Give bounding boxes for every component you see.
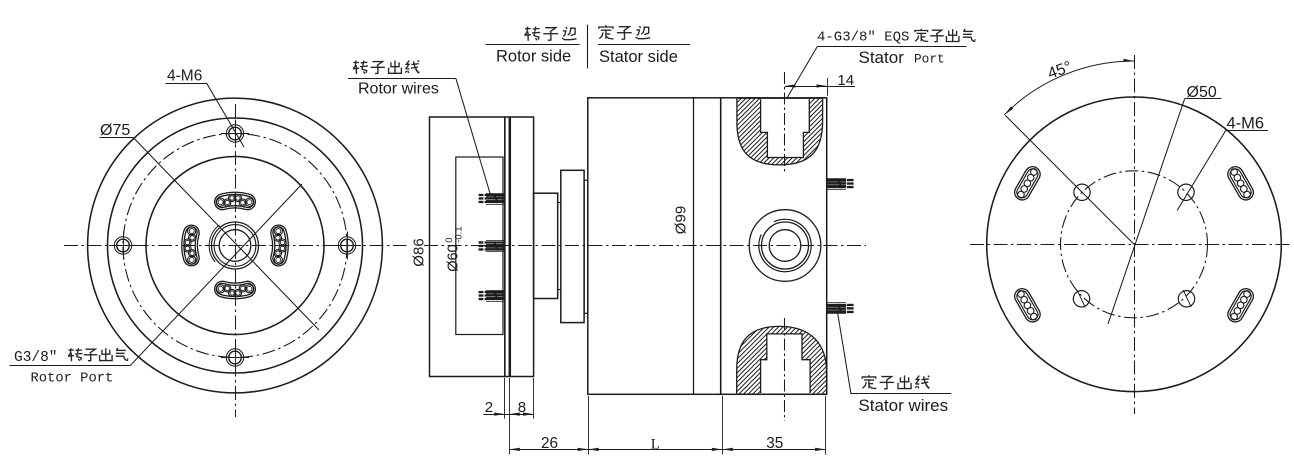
svg-text:Ø99: Ø99 (673, 206, 690, 234)
svg-text:Stator wires: Stator wires (858, 396, 948, 415)
svg-text:2: 2 (485, 399, 493, 416)
svg-text:Stator side: Stator side (599, 48, 678, 66)
svg-text:4-G3/8″ EQS: 4-G3/8″ EQS (817, 30, 909, 46)
svg-text:Rotor wires: Rotor wires (358, 81, 439, 98)
svg-text:35: 35 (766, 435, 783, 452)
svg-text:Rotor side: Rotor side (496, 47, 571, 65)
svg-text:Rotor Port: Rotor Port (31, 372, 114, 387)
svg-text:-0.1: -0.1 (454, 226, 465, 242)
svg-text:26: 26 (541, 435, 558, 452)
svg-text:4-M6: 4-M6 (167, 68, 202, 85)
svg-text:Ø75: Ø75 (100, 122, 130, 139)
svg-text:Stator: Stator (859, 48, 905, 67)
svg-text:Ø60: Ø60 (446, 244, 462, 271)
svg-text:Port: Port (914, 52, 945, 67)
svg-text:L: L (651, 436, 660, 452)
svg-text:14: 14 (837, 72, 854, 89)
svg-text:4-M6: 4-M6 (1227, 114, 1265, 132)
svg-text:Ø50: Ø50 (1187, 84, 1217, 101)
svg-text:8: 8 (518, 399, 526, 416)
svg-text:Ø86: Ø86 (410, 238, 427, 266)
svg-text:G3/8″: G3/8″ (14, 350, 58, 366)
